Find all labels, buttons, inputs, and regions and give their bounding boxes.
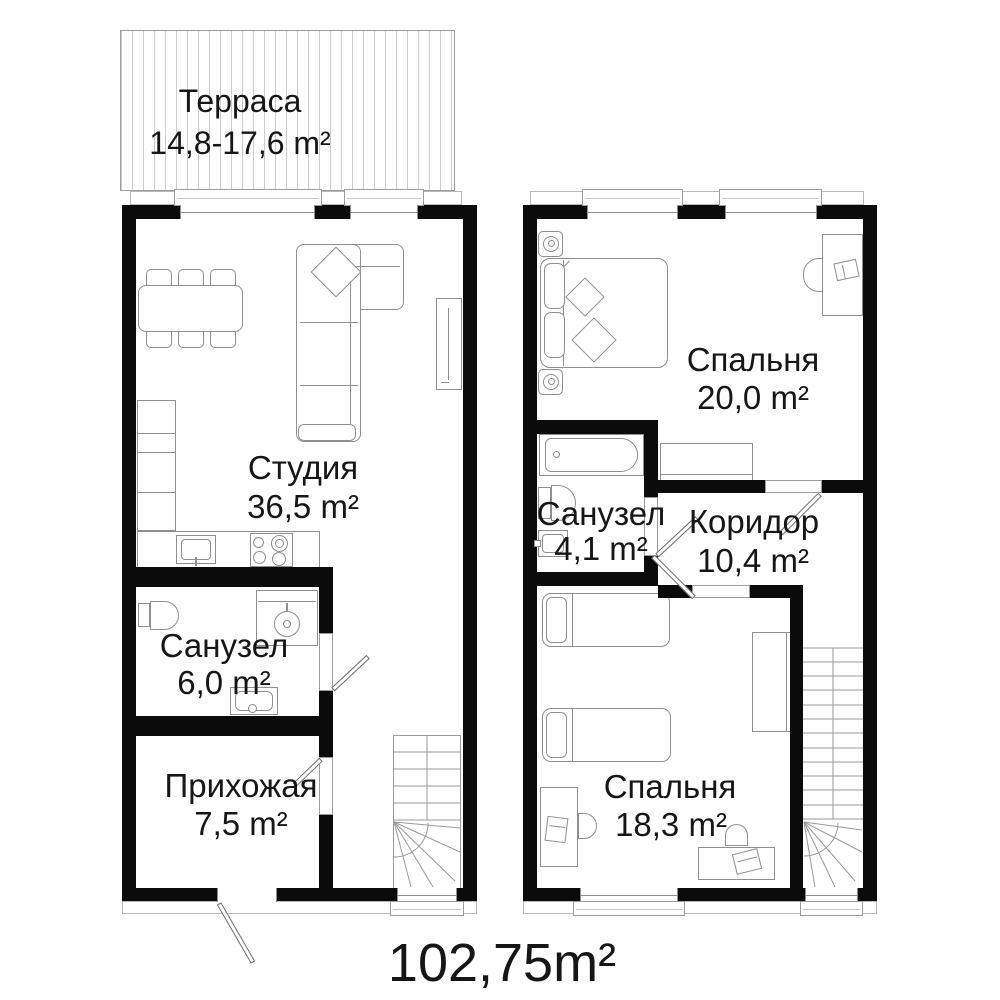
terrace-label: Терраса (179, 84, 302, 119)
laptop-icon (545, 816, 569, 843)
pillow (544, 312, 565, 358)
bedroom-second-area: 18,3 m² (615, 807, 727, 843)
blanket-edge (572, 709, 573, 761)
window (350, 205, 418, 219)
faucet-icon (248, 704, 257, 713)
wall (136, 567, 333, 587)
hallway-label: Прихожая (165, 768, 318, 804)
entrance-door-opening (217, 888, 277, 902)
dining-chair (210, 269, 236, 286)
bedroom-main-area: 20,0 m² (697, 380, 809, 416)
tv-detail (441, 382, 449, 383)
window-sill (582, 189, 683, 206)
door-opening (692, 585, 750, 598)
window-sill (719, 189, 822, 206)
drain-icon (553, 451, 560, 458)
window (580, 888, 678, 902)
lamp-icon (548, 378, 555, 385)
corridor-area: 10,4 m² (697, 543, 809, 579)
window (805, 888, 858, 902)
hallway-area: 7,5 m² (194, 806, 288, 842)
stairs (393, 735, 461, 888)
door-opening (319, 757, 333, 815)
window (587, 205, 678, 219)
window (180, 205, 315, 219)
stairs (803, 600, 863, 888)
desk-chair (725, 824, 748, 846)
toilet-tank (138, 603, 150, 627)
sofa-seam (350, 270, 351, 424)
lamp-icon (548, 240, 555, 247)
wall (523, 420, 658, 434)
faucet-icon (534, 540, 541, 547)
corridor-label: Коридор (689, 504, 819, 540)
dining-chair (146, 331, 172, 348)
pillow (544, 263, 565, 309)
blanket-edge (572, 594, 573, 646)
window-sill (174, 189, 322, 206)
window (725, 205, 817, 219)
wall (136, 716, 333, 736)
window-sill (344, 189, 424, 206)
studio-area: 36,5 m² (247, 489, 359, 525)
terrace-area: 14,8-17,6 m² (149, 126, 330, 161)
bathroom1-label: Санузел (160, 628, 289, 664)
burner-icon (275, 539, 284, 548)
shower-rail (258, 601, 316, 602)
tv-screen (448, 308, 449, 380)
wardrobe-door-line (786, 633, 787, 731)
toilet-bowl (150, 601, 179, 630)
bedroom-second-label: Спальня (604, 769, 737, 805)
cabinet-divider (138, 492, 175, 493)
door-opening (319, 633, 333, 691)
sofa-armrest (298, 424, 356, 441)
window (397, 888, 457, 902)
faucet-icon (195, 557, 197, 566)
sofa-seam (352, 266, 400, 267)
burner-icon (253, 537, 264, 548)
bathroom1-area: 6,0 m² (177, 665, 271, 701)
studio-label: Студия (248, 450, 358, 486)
floor-plan-canvas: Терраса 14,8-17,6 m² Студия 36,5 m² Сану… (0, 0, 1000, 1000)
pillow (546, 597, 567, 643)
dining-table (138, 285, 243, 332)
pillow (546, 712, 567, 758)
dining-chair (178, 269, 204, 286)
bedroom-main-label: Спальня (687, 342, 820, 378)
door-opening (765, 480, 822, 493)
burner-icon (272, 552, 286, 566)
dining-chair (178, 331, 204, 348)
cabinet-divider (138, 433, 175, 434)
wall (658, 480, 863, 493)
kitchen-cabinets (137, 400, 176, 531)
cabinet-divider (138, 452, 175, 453)
tv-stand (436, 298, 462, 390)
dining-chair (210, 331, 236, 348)
bathroom2-label: Санузел (537, 496, 666, 532)
wardrobe (660, 443, 753, 481)
wall (790, 585, 803, 888)
window-sill (800, 901, 863, 916)
wall (523, 572, 658, 586)
window-sill (390, 901, 464, 916)
bathroom2-area: 4,1 m² (554, 531, 648, 567)
total-area-label: 102,75m² (388, 934, 616, 993)
window-sill (573, 901, 685, 916)
wardrobe-shelf (661, 474, 752, 475)
burner-icon (253, 551, 266, 564)
dining-chair (146, 269, 172, 286)
